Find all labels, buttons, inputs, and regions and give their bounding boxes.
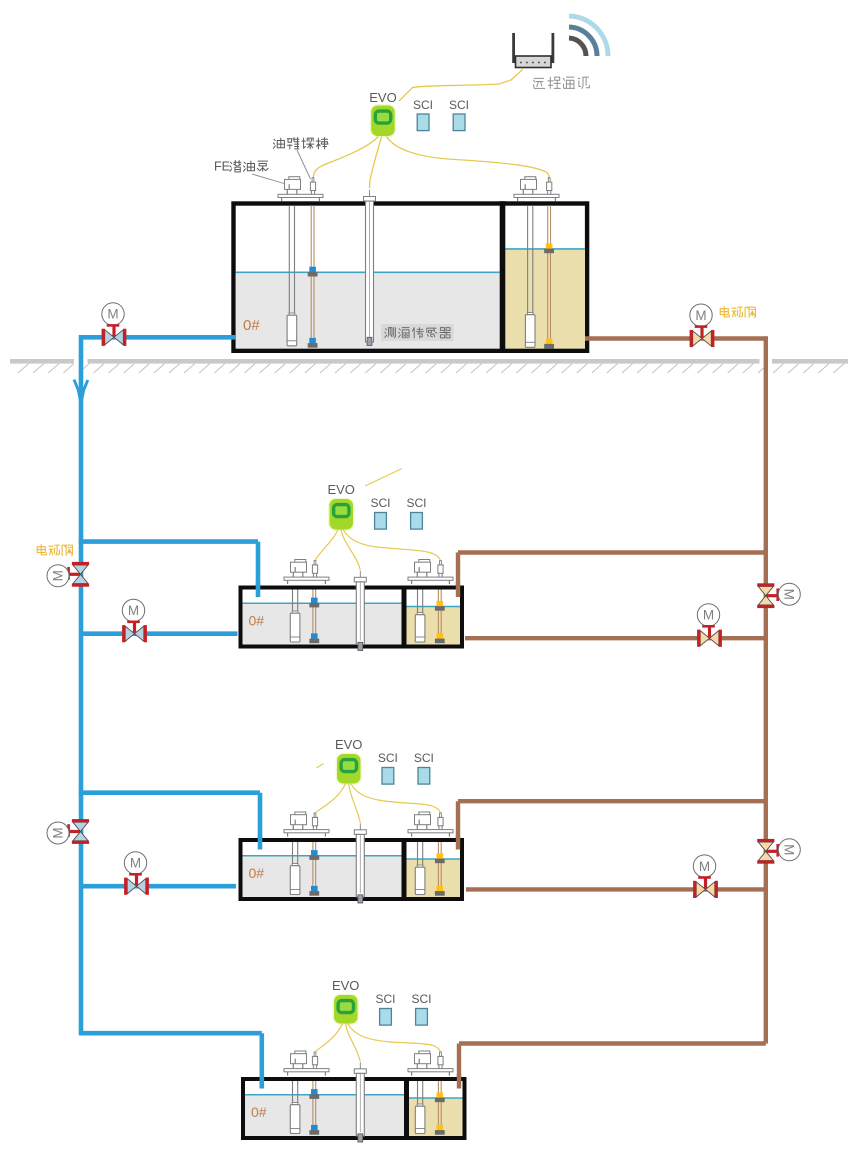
svg-text:M: M (782, 844, 797, 855)
svg-text:SCI: SCI (370, 496, 390, 510)
svg-text:M: M (51, 827, 66, 838)
svg-text:EVO: EVO (335, 737, 362, 752)
svg-text:M: M (128, 603, 139, 618)
svg-text:0#: 0# (249, 613, 265, 629)
svg-text:0#: 0# (243, 317, 260, 334)
svg-text:0#: 0# (249, 865, 265, 881)
svg-text:EVO: EVO (332, 978, 359, 993)
svg-text:M: M (695, 308, 706, 323)
svg-text:M: M (782, 589, 797, 600)
svg-text:SCI: SCI (414, 751, 434, 765)
svg-text:M: M (703, 608, 714, 623)
svg-text:M: M (699, 859, 710, 874)
svg-text:EVO: EVO (369, 90, 396, 105)
svg-text:SCI: SCI (449, 98, 469, 112)
svg-text:SCI: SCI (378, 751, 398, 765)
svg-text:SCI: SCI (375, 992, 395, 1006)
svg-text:SCI: SCI (411, 992, 431, 1006)
svg-text:EVO: EVO (327, 482, 354, 497)
svg-text:M: M (130, 856, 141, 871)
svg-text:SCI: SCI (406, 496, 426, 510)
svg-text:M: M (107, 307, 118, 322)
svg-text:0#: 0# (251, 1104, 267, 1120)
svg-text:M: M (51, 570, 66, 581)
svg-text:SCI: SCI (413, 98, 433, 112)
svg-text:FE: FE (214, 160, 230, 174)
